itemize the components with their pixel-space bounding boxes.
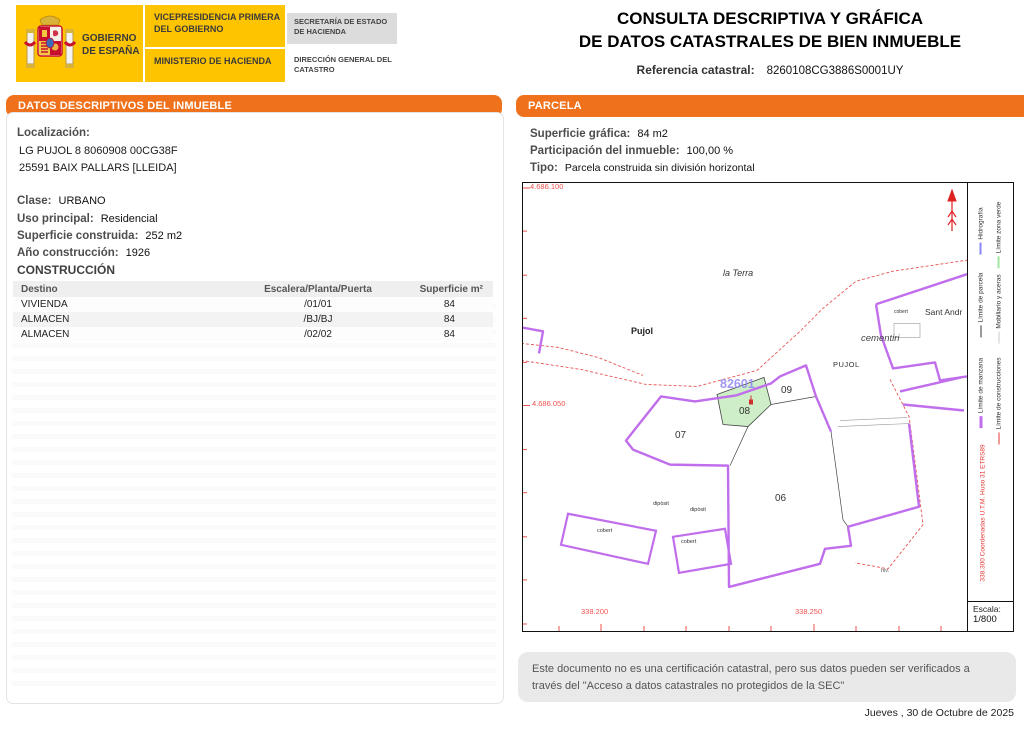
legend-item-limite-parcela: Límite de parcela xyxy=(978,273,985,338)
legend-item-mobiliario: Mobiliario y aceras xyxy=(996,274,1003,343)
vicepresidencia-label: VICEPRESIDENCIA PRIMERA DEL GOBIERNO xyxy=(145,5,285,35)
parcel-label-07: 07 xyxy=(675,430,686,441)
field-tipo: Tipo:Parcela construida sin división hor… xyxy=(530,158,755,176)
table-row: VIVIENDA /01/01 84 xyxy=(13,297,493,312)
legend-item-hidrografia: Hidrografía xyxy=(978,207,985,254)
table-header-row: Destino Escalera/Planta/Puerta Superfici… xyxy=(13,281,493,297)
parcel-label-09: 09 xyxy=(781,385,792,396)
scale-value: 1/800 xyxy=(973,614,1013,625)
parcel-label-08: 08 xyxy=(739,406,750,417)
legend-item-limite-manzana: Límite de manzana xyxy=(978,358,985,428)
referencia-catastral: Referencia catastral:8260108CG3886S0001U… xyxy=(524,63,1016,77)
parcel-label-06: 06 xyxy=(775,493,786,504)
title-line-2: DE DATOS CATASTRALES DE BIEN INMUEBLE xyxy=(524,31,1016,54)
place-label-cementiri: cementiri xyxy=(861,333,900,344)
building-label-cobert-cementiri: cobert xyxy=(894,309,908,315)
localizacion-municipio: 25591 BAIX PALLARS [LLEIDA] xyxy=(19,162,177,174)
field-participacion: Participación del inmueble:100,00 % xyxy=(530,141,733,159)
coord-label-south-2: 338.250 xyxy=(795,607,822,616)
cadastral-map: 4.686.100 4.686.050 338.200 338.250 la T… xyxy=(522,182,1014,632)
title-line-1: CONSULTA DESCRIPTIVA Y GRÁFICA xyxy=(524,8,1016,31)
scale-label: Escala: xyxy=(973,604,1013,614)
field-anio-construccion: Año construcción:1926 xyxy=(17,243,150,261)
col-escalera-planta-puerta: Escalera/Planta/Puerta xyxy=(232,281,404,297)
utm-coordinates-note: 338.300 Coordenadas U.T.M. Huso 31 ETRS8… xyxy=(980,444,987,581)
legend-item-limite-construcciones: Límite de construcciones xyxy=(996,358,1003,445)
field-clase: Clase:URBANO xyxy=(17,191,106,209)
ministerio-label: MINISTERIO DE HACIENDA xyxy=(145,49,285,68)
col-superficie: Superficie m² xyxy=(404,281,493,297)
field-superficie-construida: Superficie construida:252 m2 xyxy=(17,226,182,244)
coord-label-north: 4.686.100 xyxy=(530,183,563,191)
ministerio-box: MINISTERIO DE HACIENDA xyxy=(145,49,285,82)
coat-of-arms xyxy=(24,12,76,76)
secretaria-box: SECRETARÍA DE ESTADO DE HACIENDA xyxy=(287,13,397,44)
legend-item-zona-verde: Límite zona verde xyxy=(996,202,1003,269)
mobiliario-line-swatch xyxy=(998,332,999,344)
document-title: CONSULTA DESCRIPTIVA Y GRÁFICA DE DATOS … xyxy=(524,8,1016,77)
referencia-value: 8260108CG3886S0001UY xyxy=(767,65,904,77)
coord-label-south-1: 338.200 xyxy=(581,607,608,616)
datos-descriptivos-panel: Localización: LG PUJOL 8 8060908 00CG38F… xyxy=(6,112,504,704)
direccion-general-label: DIRECCIÓN GENERAL DEL CATASTRO xyxy=(294,55,404,75)
building-label-cobert-1: cobert xyxy=(597,528,612,534)
empty-table-stripes xyxy=(12,296,496,694)
building-label-cobert-2: cobert xyxy=(681,539,696,545)
place-label-la-terra: la Terra xyxy=(723,268,753,278)
gobierno-logo-box: GOBIERNO DE ESPAÑA xyxy=(16,5,143,82)
map-legend: Hidrografía Límite zona verde Límite de … xyxy=(967,183,1013,631)
limite-manzana-line-swatch xyxy=(979,416,982,428)
table-row: ALMACEN /02/02 84 xyxy=(13,327,493,342)
building-label-diposit-2: dipòsit xyxy=(690,507,706,513)
limite-construcciones-line-swatch xyxy=(998,432,1000,444)
coord-label-west: 4.686.050 xyxy=(532,399,565,408)
section-header-parcela: PARCELA xyxy=(516,95,1024,117)
col-destino: Destino xyxy=(13,281,232,297)
construccion-title: CONSTRUCCIÓN xyxy=(17,263,115,277)
document-date: Jueves , 30 de Octubre de 2025 xyxy=(865,707,1014,719)
disclaimer-note: Este documento no es una certificación c… xyxy=(518,652,1016,702)
field-superficie-grafica: Superficie gráfica:84 m2 xyxy=(530,124,668,142)
table-row: ALMACEN /BJ/BJ 84 xyxy=(13,312,493,327)
limite-parcela-line-swatch xyxy=(980,325,982,337)
cadastral-document: GOBIERNO DE ESPAÑA VICEPRESIDENCIA PRIME… xyxy=(0,0,1024,732)
construccion-table: Destino Escalera/Planta/Puerta Superfici… xyxy=(13,281,493,342)
north-arrow xyxy=(948,190,956,231)
vicepresidencia-box: VICEPRESIDENCIA PRIMERA DEL GOBIERNO xyxy=(145,5,285,47)
manzana-reference-label: 82601 xyxy=(720,377,755,391)
building-label-diposit-1: dipòsit xyxy=(653,501,669,507)
referencia-label: Referencia catastral: xyxy=(637,63,755,77)
place-label-pujol-caps: PUJOL xyxy=(833,360,860,369)
gobierno-label: GOBIERNO DE ESPAÑA xyxy=(82,33,140,58)
building-label-hiv: hiv. xyxy=(881,568,889,574)
hidrografia-line-swatch xyxy=(980,243,982,255)
place-label-pujol: Pujol xyxy=(631,326,653,336)
map-canvas: 4.686.100 4.686.050 338.200 338.250 la T… xyxy=(523,183,967,631)
localizacion-label: Localización: xyxy=(17,127,90,139)
field-uso-principal: Uso principal:Residencial xyxy=(17,209,158,227)
zona-verde-line-swatch xyxy=(998,256,1000,268)
scale-box: Escala: 1/800 xyxy=(968,601,1013,631)
place-label-sant-andr: Sant Andr xyxy=(925,307,962,317)
localizacion-address: LG PUJOL 8 8060908 00CG38F xyxy=(19,145,178,157)
